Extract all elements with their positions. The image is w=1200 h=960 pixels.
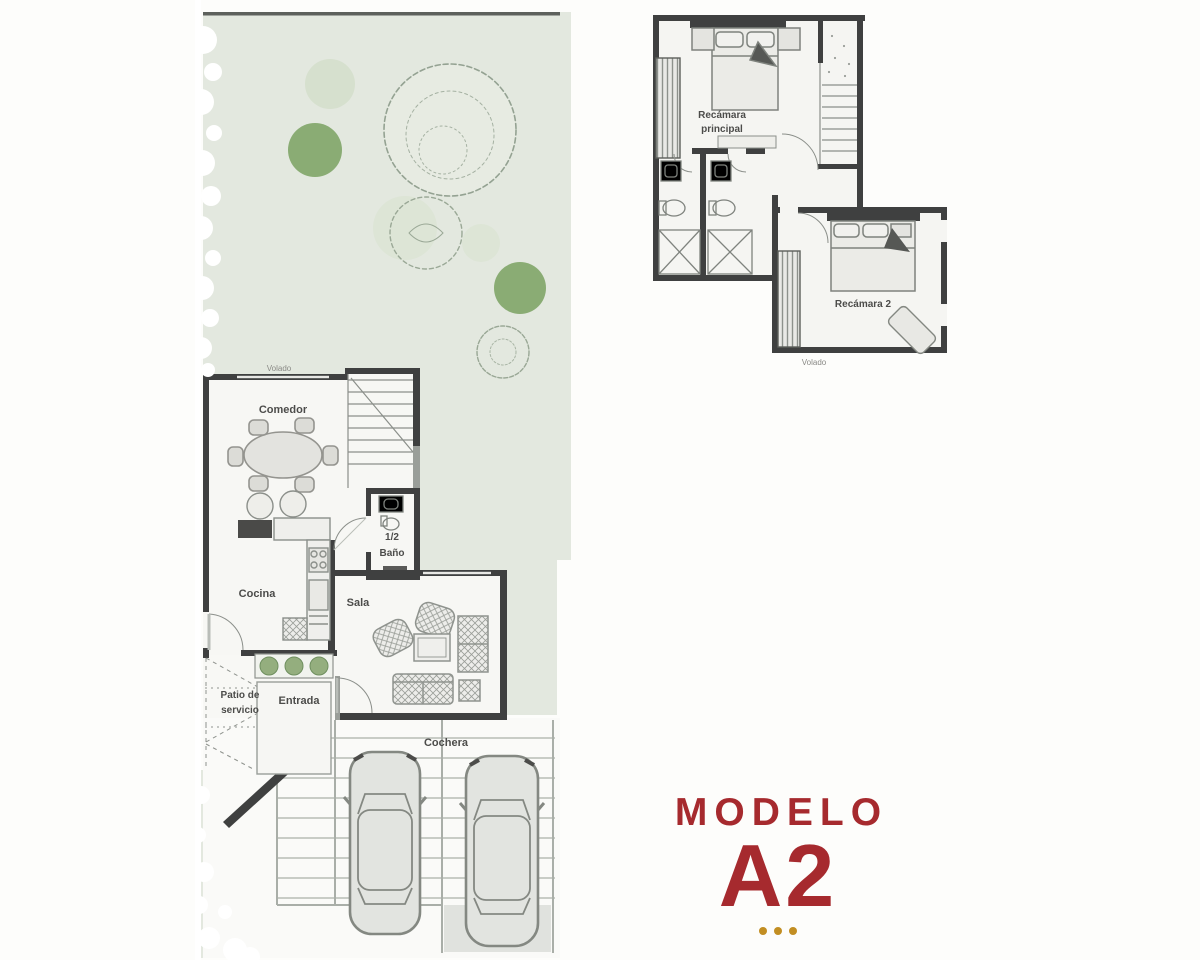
entrada-label: Entrada	[279, 695, 321, 707]
kitchen-sink	[309, 580, 328, 610]
pale-bush	[373, 196, 437, 260]
floorplan-sheet: Volado Comedor Cocina 1/2 Baño Sala Pati…	[0, 0, 1200, 960]
recamara-principal-label-1: Recámara	[698, 110, 746, 121]
dot-icon	[759, 927, 767, 935]
counter	[283, 618, 307, 640]
pale-bush	[305, 59, 355, 109]
lot-top-wall	[203, 12, 560, 16]
patio-label-1: Patio de	[221, 690, 260, 701]
closet-hatch	[656, 58, 680, 158]
dot-icon	[774, 927, 782, 935]
model-title-block: MODELO A2	[648, 793, 908, 935]
stove	[309, 548, 328, 572]
side-table	[459, 680, 480, 701]
refrigerator	[238, 520, 272, 538]
cocina-label: Cocina	[239, 588, 277, 600]
upper-floor-plan: Recámara principal	[630, 8, 970, 373]
cochera-label: Cochera	[424, 737, 469, 749]
bed-2	[827, 213, 920, 291]
patio-label-2: servicio	[221, 705, 259, 716]
recamara-2-label: Recámara 2	[835, 299, 892, 310]
comedor-label: Comedor	[259, 404, 308, 416]
car-1	[344, 752, 426, 934]
model-dots	[648, 927, 908, 935]
sofa	[393, 674, 453, 704]
closet-hatch	[778, 251, 800, 347]
volado-note-upper: Volado	[802, 358, 827, 367]
bush	[288, 123, 342, 177]
sala-label: Sala	[347, 597, 371, 609]
stool	[247, 493, 273, 519]
model-name: A2	[648, 834, 908, 918]
recamara-principal-label-2: principal	[701, 124, 743, 135]
car-2	[460, 756, 544, 946]
stool	[280, 491, 306, 517]
ground-floor-plan: Volado Comedor Cocina 1/2 Baño Sala Pati…	[195, 0, 580, 960]
pale-bush	[462, 224, 500, 262]
bed-bench	[718, 136, 776, 148]
entrada-planters	[255, 654, 333, 774]
volado-note-ground: Volado	[267, 364, 292, 373]
dot-icon	[789, 927, 797, 935]
half-bath-label-1: 1/2	[385, 532, 399, 543]
half-bath-label-2: Baño	[380, 548, 405, 559]
tv-console	[458, 616, 488, 672]
bush	[494, 262, 546, 314]
large-tree-sketch	[384, 64, 516, 196]
